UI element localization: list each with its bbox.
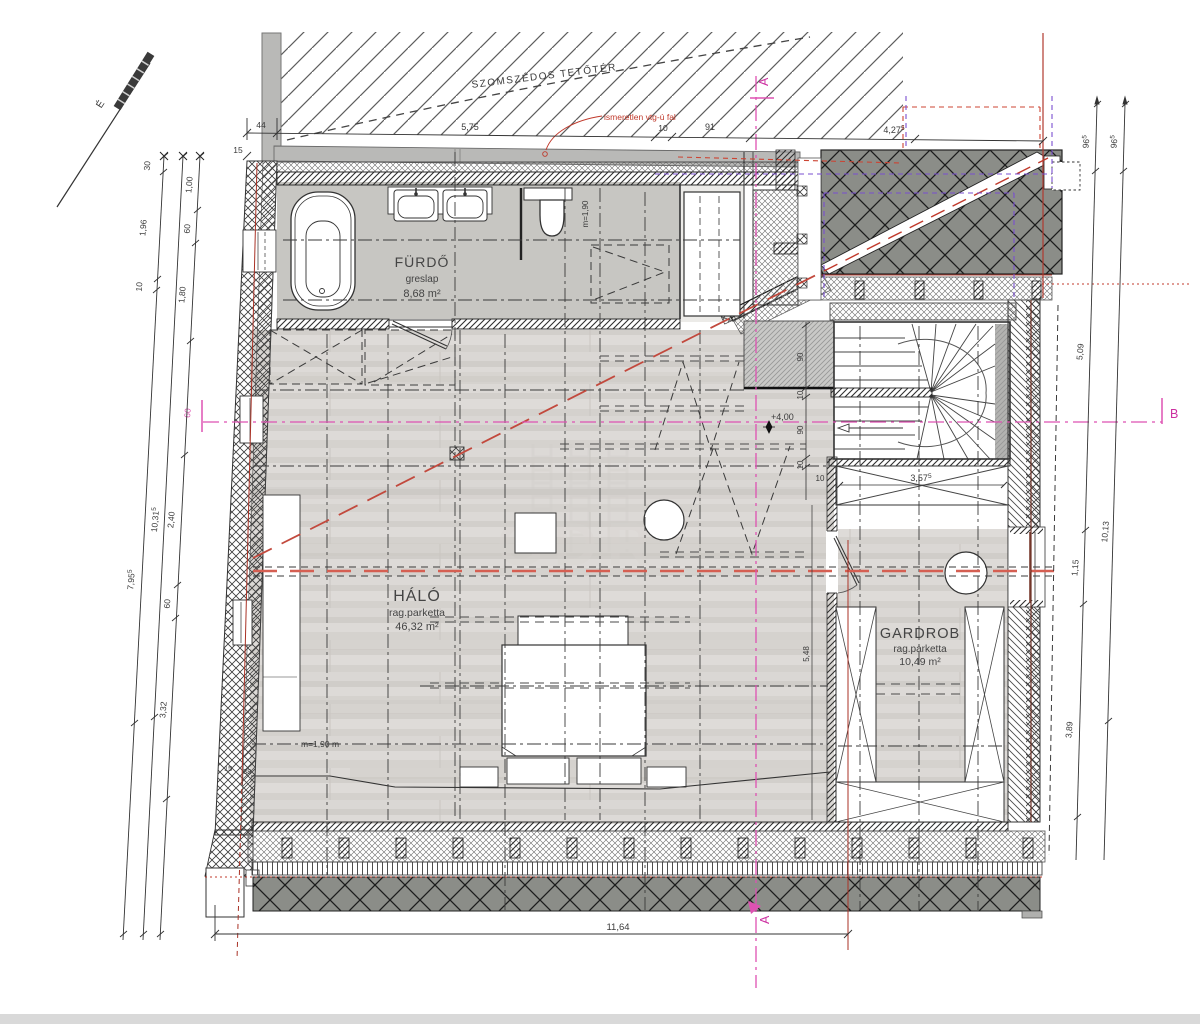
svg-text:B: B	[1170, 407, 1178, 421]
svg-text:A: A	[758, 915, 772, 924]
svg-text:15: 15	[233, 145, 243, 155]
svg-text:1,96: 1,96	[137, 219, 148, 237]
svg-text:15: 15	[224, 764, 232, 773]
svg-text:1,15: 1,15	[1069, 559, 1080, 577]
svg-text:30: 30	[142, 160, 153, 171]
svg-text:10: 10	[796, 390, 805, 399]
svg-text:greslap: greslap	[406, 274, 439, 285]
svg-text:46,32 m²: 46,32 m²	[395, 621, 439, 633]
svg-text:3,32: 3,32	[157, 701, 168, 719]
svg-text:5,75: 5,75	[461, 122, 479, 132]
svg-text:5,09: 5,09	[1074, 343, 1085, 361]
svg-text:1,80: 1,80	[176, 286, 187, 304]
svg-text:38: 38	[243, 767, 251, 776]
svg-text:m=1,90 m: m=1,90 m	[301, 739, 339, 749]
svg-text:10: 10	[134, 281, 145, 292]
svg-text:rag.parketta: rag.parketta	[389, 607, 445, 619]
svg-text:60: 60	[162, 598, 173, 609]
svg-text:90: 90	[796, 425, 805, 434]
svg-text:rag.parketta: rag.parketta	[893, 644, 947, 655]
svg-text:11,64: 11,64	[606, 922, 629, 933]
svg-text:10,13: 10,13	[1099, 520, 1111, 542]
svg-text:5,48: 5,48	[802, 646, 811, 662]
svg-text:44: 44	[256, 120, 266, 130]
svg-text:+4,00: +4,00	[771, 412, 794, 422]
svg-text:8,68 m²: 8,68 m²	[403, 288, 441, 300]
svg-text:91: 91	[705, 122, 715, 132]
svg-text:3,89: 3,89	[1063, 721, 1074, 739]
svg-text:ismeretlen vtg-ú fal: ismeretlen vtg-ú fal	[604, 112, 676, 122]
svg-text:A: A	[757, 77, 771, 86]
svg-text:10,49 m²: 10,49 m²	[899, 656, 941, 668]
svg-text:HÁLÓ: HÁLÓ	[393, 586, 441, 605]
svg-text:m=1,90: m=1,90	[581, 200, 590, 227]
svg-text:2,40: 2,40	[165, 511, 176, 529]
svg-text:90: 90	[796, 352, 805, 361]
svg-text:GARDROB: GARDROB	[880, 626, 960, 642]
svg-text:60: 60	[182, 223, 193, 234]
svg-text:1,00: 1,00	[183, 176, 194, 194]
svg-text:10: 10	[658, 123, 668, 133]
svg-text:FÜRDŐ: FÜRDŐ	[395, 253, 450, 270]
svg-text:10: 10	[816, 474, 825, 483]
svg-text:10: 10	[796, 460, 805, 469]
